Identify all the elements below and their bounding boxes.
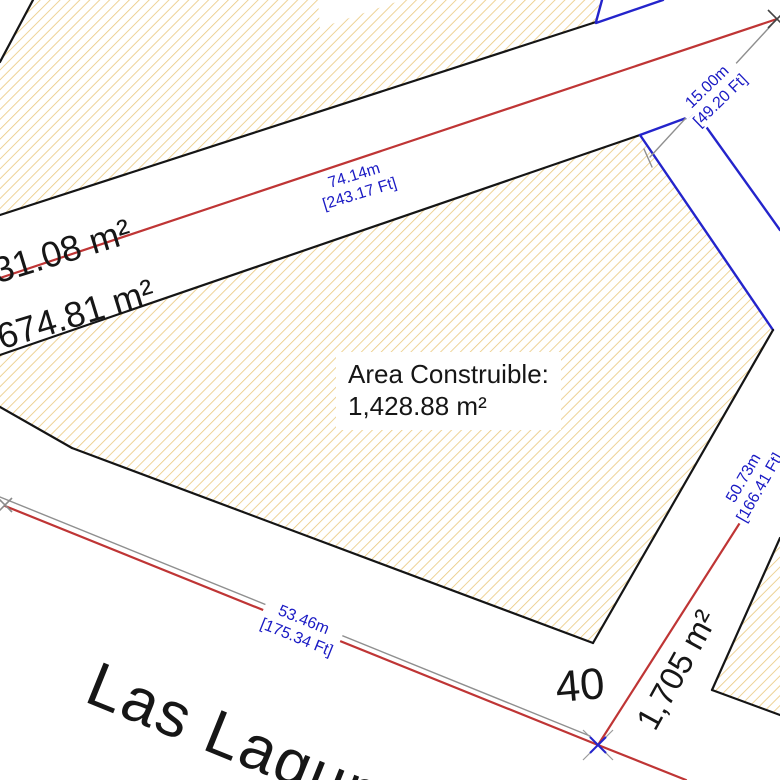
buildable-area-title: Area Construible: [348, 358, 549, 390]
buildable-area-label: Area Construible: 1,428.88 m² [336, 352, 561, 430]
dimension-line-south-continuation [598, 745, 686, 780]
buildable-area-value: 1,428.88 m² [348, 390, 549, 422]
survey-plan-canvas: Area Construible: 1,428.88 m² 31.08 m² 6… [0, 0, 780, 780]
survey-cross-bottom [583, 730, 613, 760]
lot-number-label: 40 [553, 659, 606, 713]
